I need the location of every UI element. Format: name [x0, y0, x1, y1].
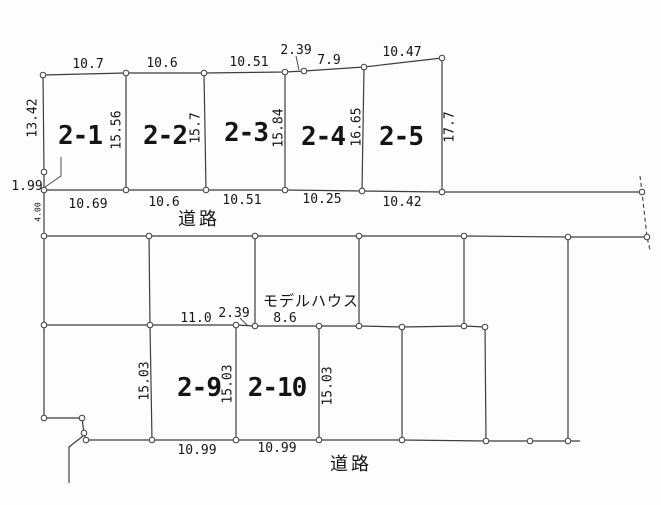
dim-1-99: 1.99	[11, 179, 42, 194]
junction-point	[41, 233, 47, 239]
parcel-label-2-3: 2-3	[224, 118, 268, 148]
junction-point	[41, 169, 47, 175]
lower-road-north-edge	[86, 440, 580, 441]
dim-road-width-4: 4.00	[34, 202, 43, 221]
junction-point	[282, 69, 288, 75]
road-label-top: 道路	[178, 209, 220, 230]
southwest-spur	[69, 436, 83, 483]
junction-point	[203, 187, 209, 193]
dim-mid-2-39: 2.39	[218, 306, 249, 321]
junction-point	[282, 187, 288, 193]
dim-side-13-42: 13.42	[26, 98, 41, 137]
junction-point	[316, 323, 322, 329]
junction-point	[527, 438, 533, 444]
parcel-label-2-5: 2-5	[379, 122, 423, 152]
junction-point	[79, 415, 85, 421]
junction-point	[123, 70, 129, 76]
junction-point	[439, 189, 445, 195]
junction-point	[252, 323, 258, 329]
junction-point	[482, 324, 488, 330]
dim-side-15-03-b: 15.03	[221, 364, 236, 403]
junction-point	[233, 322, 239, 328]
junction-point	[81, 430, 87, 436]
junction-point	[147, 322, 153, 328]
junction-point	[439, 55, 445, 61]
dim-top-7-9: 7.9	[317, 53, 340, 68]
junction-point	[123, 187, 129, 193]
parcel-label-2-2: 2-2	[143, 121, 187, 151]
junction-point	[461, 323, 467, 329]
junction-point	[252, 233, 258, 239]
dim-bottom-2-4: 10.25	[302, 192, 341, 207]
dim-side-15-84: 15.84	[272, 108, 287, 147]
dim-bottom-2-10: 10.99	[257, 441, 296, 456]
leader-1-99	[45, 157, 61, 187]
junction-point	[359, 188, 365, 194]
junction-point	[565, 438, 571, 444]
junction-point	[483, 438, 489, 444]
junction-point	[201, 70, 207, 76]
dim-bottom-2-9: 10.99	[177, 443, 216, 458]
junction-point	[399, 324, 405, 330]
dim-side-15-7: 15.7	[189, 112, 204, 143]
dim-top-2-2: 10.6	[146, 56, 177, 71]
dim-bottom-2-2: 10.6	[148, 195, 179, 210]
dim-top-2-39: 2.39	[280, 43, 311, 58]
dim-top-2-1: 10.7	[72, 57, 103, 72]
southwest-corner-jog	[44, 418, 86, 440]
road-label-bottom: 道路	[330, 454, 372, 475]
survey-sheet: 10.710.610.512.397.910.4713.4215.5615.71…	[0, 0, 661, 505]
dim-mid-8-6: 8.6	[273, 311, 296, 326]
junction-point	[356, 323, 362, 329]
upper-road-north-edge	[44, 190, 642, 192]
dim-side-15-03-c: 15.03	[321, 366, 336, 405]
junction-point	[565, 234, 571, 240]
west-boundary	[43, 75, 44, 418]
dim-bottom-2-1: 10.69	[68, 197, 107, 212]
parcel-label-2-1: 2-1	[58, 121, 102, 151]
junction-point	[83, 437, 89, 443]
junction-point	[40, 72, 46, 78]
dim-side-17-7: 17.7	[443, 111, 458, 142]
junction-point	[399, 437, 405, 443]
junction-point	[146, 233, 152, 239]
leader-2-39-top	[296, 56, 299, 70]
junction-point	[356, 233, 362, 239]
model-house-label: モデルハウス	[263, 292, 359, 310]
dim-side-15-03-a: 15.03	[138, 361, 153, 400]
survey-drawing: 10.710.610.512.397.910.4713.4215.5615.71…	[0, 0, 661, 505]
junction-point	[316, 437, 322, 443]
dim-top-2-3: 10.51	[229, 55, 268, 70]
junction-point	[461, 233, 467, 239]
dim-mid-11-0: 11.0	[180, 311, 211, 326]
lower-block-divider-b	[485, 327, 486, 441]
junction-point	[149, 437, 155, 443]
dim-bottom-2-3: 10.51	[222, 193, 261, 208]
junction-point	[233, 437, 239, 443]
junction-point	[41, 415, 47, 421]
middle-block-south-line	[44, 325, 485, 327]
junction-point	[361, 64, 367, 70]
junction-point	[301, 68, 307, 74]
junction-point	[644, 234, 650, 240]
parcel-label-2-10: 2-10	[248, 373, 307, 403]
parcel-divider-2-2-2-3	[204, 73, 206, 190]
parcel-label-2-4: 2-4	[301, 122, 345, 152]
dim-top-2-5: 10.47	[382, 45, 421, 60]
upper-road-south-edge	[44, 236, 647, 237]
parcel-label-2-9: 2-9	[177, 373, 221, 403]
dim-side-16-65: 16.65	[350, 107, 365, 146]
middle-block-divider-a	[149, 236, 152, 440]
dim-side-15-56: 15.56	[110, 110, 125, 149]
dim-bottom-2-5: 10.42	[382, 195, 421, 210]
junction-point	[639, 189, 645, 195]
junction-point	[41, 322, 47, 328]
